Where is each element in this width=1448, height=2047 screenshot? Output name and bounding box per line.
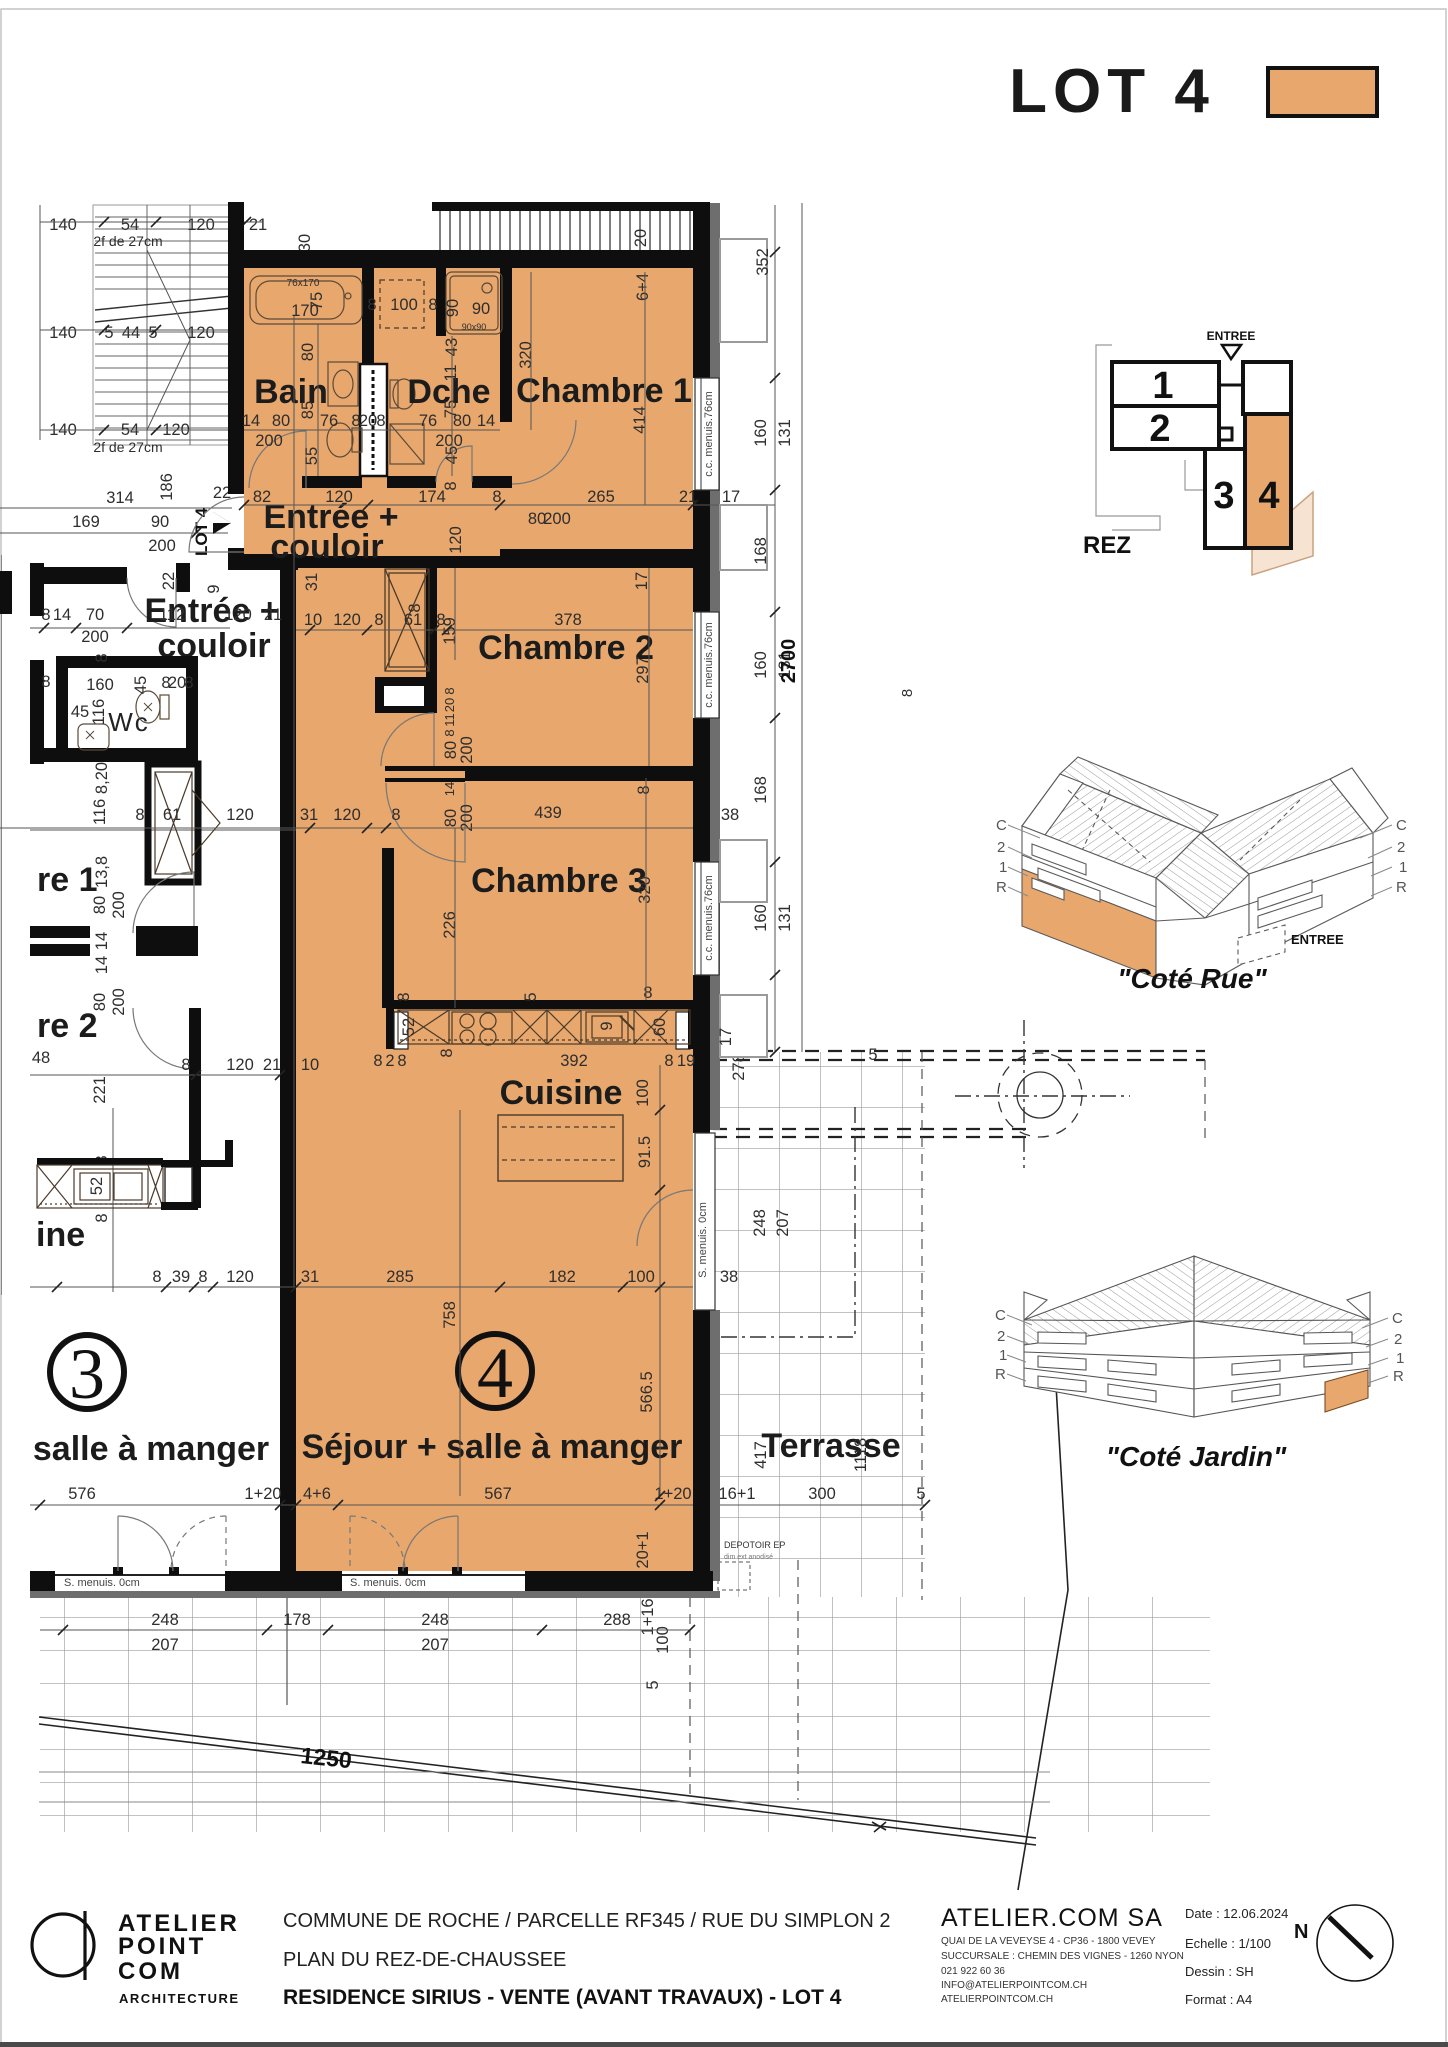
svg-text:2f de 27cm: 2f de 27cm [93,439,162,455]
svg-text:91.5: 91.5 [636,1136,654,1168]
svg-text:378: 378 [554,611,582,629]
svg-text:200: 200 [435,432,463,450]
svg-text:178: 178 [283,1611,311,1629]
svg-text:8: 8 [397,1052,406,1070]
svg-text:LOT 4: LOT 4 [1009,57,1215,126]
svg-text:13,8: 13,8 [93,856,111,888]
svg-text:120: 120 [333,806,361,824]
svg-text:1118: 1118 [852,1438,870,1472]
svg-text:226: 226 [441,911,459,939]
svg-text:17: 17 [633,572,651,590]
svg-text:100: 100 [627,1268,655,1286]
svg-text:52: 52 [88,1177,106,1195]
svg-text:200: 200 [81,628,109,646]
svg-text:ATELIER.COM SA: ATELIER.COM SA [941,1904,1163,1932]
svg-text:8: 8 [93,1213,111,1222]
svg-text:116: 116 [90,699,108,725]
svg-text:14: 14 [53,606,71,624]
svg-text:80: 80 [299,343,317,361]
svg-text:c.c. menuis.76cm: c.c. menuis.76cm [703,875,715,961]
svg-text:90: 90 [472,300,490,318]
svg-text:414: 414 [631,406,649,434]
svg-text:RESIDENCE SIRIUS - VENTE (AVAN: RESIDENCE SIRIUS - VENTE (AVANT TRAVAUX)… [283,1986,842,2009]
svg-text:8: 8 [198,1268,207,1286]
svg-text:200: 200 [110,988,128,1016]
svg-text:8: 8 [395,992,413,1001]
svg-text:Format : A4: Format : A4 [1185,1992,1252,2007]
svg-text:ENTREE: ENTREE [1207,329,1256,343]
svg-text:160: 160 [752,651,770,679]
svg-text:1: 1 [1152,365,1173,407]
svg-text:S. menuis. 0cm: S. menuis. 0cm [697,1202,709,1278]
svg-text:160: 160 [86,676,114,694]
svg-text:200: 200 [458,736,476,764]
svg-text:31: 31 [300,806,318,824]
svg-text:21: 21 [263,1056,281,1074]
svg-text:c.c. menuis.76cm: c.c. menuis.76cm [703,391,715,477]
svg-text:30: 30 [296,234,314,252]
svg-text:C: C [996,817,1007,834]
svg-text:70: 70 [86,606,104,624]
svg-text:2: 2 [1394,1331,1402,1348]
svg-text:2: 2 [1397,839,1405,856]
svg-text:8: 8 [438,1048,456,1057]
svg-text:200: 200 [148,537,176,555]
svg-text:140: 140 [49,216,77,234]
svg-text:2: 2 [997,1328,1005,1345]
svg-text:44: 44 [122,324,140,342]
svg-text:salle à manger: salle à manger [33,1430,269,1468]
svg-text:5: 5 [104,324,113,342]
svg-text:1: 1 [999,859,1007,876]
svg-text:160: 160 [752,904,770,932]
svg-text:168: 168 [752,776,770,804]
svg-text:QUAI DE LA VEVEYSE 4 - CP36 -: QUAI DE LA VEVEYSE 4 - CP36 - 1800 VEVEY [941,1936,1156,1947]
svg-text:417: 417 [752,1441,770,1469]
svg-text:567: 567 [484,1485,512,1503]
svg-text:320: 320 [636,876,654,904]
svg-text:Date : 12.06.2024: Date : 12.06.2024 [1185,1906,1288,1921]
svg-text:COM: COM [118,1958,183,1985]
svg-text:85: 85 [299,401,317,419]
svg-text:ARCHITECTURE: ARCHITECTURE [119,1991,240,2006]
svg-text:2: 2 [997,839,1005,856]
svg-text:6+4: 6+4 [634,273,652,301]
svg-text:131: 131 [776,904,794,932]
svg-text:248: 248 [751,1209,769,1237]
svg-text:21: 21 [249,216,267,234]
svg-text:39: 39 [172,1268,190,1286]
svg-text:60: 60 [651,1018,669,1036]
svg-text:11: 11 [442,713,457,727]
svg-text:14: 14 [93,932,111,950]
svg-text:200: 200 [255,432,283,450]
svg-text:PLAN DU REZ-DE-CHAUSSEE: PLAN DU REZ-DE-CHAUSSEE [283,1949,566,1971]
svg-text:120: 120 [447,526,465,554]
svg-text:9: 9 [205,584,223,593]
svg-text:SUCCURSALE : CHEMIN DES VIGNES: SUCCURSALE : CHEMIN DES VIGNES - 1260 NY… [941,1951,1184,1962]
svg-text:100: 100 [390,296,418,314]
svg-text:576: 576 [68,1485,96,1503]
svg-text:S. menuis. 0cm: S. menuis. 0cm [64,1577,140,1589]
svg-text:314: 314 [106,489,134,507]
svg-text:80: 80 [453,412,471,430]
svg-text:1: 1 [1399,859,1407,876]
svg-text:14: 14 [477,412,495,430]
svg-text:14: 14 [93,956,111,974]
svg-text:Chambre 1: Chambre 1 [516,372,692,410]
svg-text:168: 168 [752,537,770,565]
svg-text:"Coté Jardin": "Coté Jardin" [1106,1441,1287,1472]
svg-text:17: 17 [722,488,740,506]
svg-text:320: 320 [517,341,535,369]
svg-text:112: 112 [159,606,185,624]
svg-text:4: 4 [477,1333,513,1413]
svg-text:265: 265 [587,488,615,506]
svg-text:Chambre 3: Chambre 3 [471,862,647,900]
svg-text:LOT 4: LOT 4 [192,507,211,556]
svg-text:38: 38 [720,1268,738,1286]
svg-text:2700: 2700 [778,639,800,684]
svg-text:8,20: 8,20 [93,762,111,794]
svg-text:re 2: re 2 [37,1007,98,1045]
svg-text:45: 45 [132,676,150,694]
svg-text:R: R [1396,879,1407,896]
svg-text:16+1: 16+1 [718,1485,755,1503]
svg-text:76: 76 [320,412,338,430]
svg-text:couloir: couloir [270,528,383,566]
svg-text:200: 200 [543,510,571,528]
svg-text:3: 3 [69,1334,105,1414]
svg-text:c.c. menuis.76cm: c.c. menuis.76cm [703,622,715,708]
svg-text:8: 8 [406,603,424,612]
svg-text:169: 169 [72,513,100,531]
svg-text:dim ext anodisé: dim ext anodisé [724,1554,773,1561]
svg-text:8: 8 [899,689,916,697]
svg-text:5: 5 [868,1046,877,1064]
svg-text:120: 120 [226,1056,254,1074]
svg-text:14: 14 [242,412,260,430]
svg-text:20: 20 [442,698,457,712]
svg-text:100: 100 [634,1079,652,1107]
svg-text:61: 61 [404,611,422,629]
svg-text:8: 8 [664,1052,673,1070]
svg-text:19: 19 [677,1052,695,1070]
svg-text:1: 1 [1396,1350,1404,1367]
svg-text:8: 8 [635,785,653,794]
svg-text:14: 14 [442,782,457,796]
svg-text:5: 5 [522,992,540,1001]
svg-text:120: 120 [325,488,353,506]
svg-text:S. menuis. 0cm: S. menuis. 0cm [350,1577,426,1589]
svg-text:8: 8 [93,653,111,662]
svg-text:1250: 1250 [299,1742,353,1773]
svg-text:31: 31 [303,573,321,591]
svg-text:N: N [1294,1921,1308,1943]
svg-text:131: 131 [776,419,794,447]
svg-text:REZ: REZ [1083,532,1131,559]
svg-text:392: 392 [560,1052,588,1070]
svg-text:Cuisine: Cuisine [500,1074,623,1112]
svg-text:5: 5 [644,1680,662,1689]
svg-text:2f de 27cm: 2f de 27cm [93,233,162,249]
svg-text:182: 182 [548,1268,576,1286]
svg-text:8: 8 [41,606,50,624]
svg-text:207: 207 [774,1209,792,1237]
svg-text:Séjour + salle à manger: Séjour + salle à manger [302,1428,683,1466]
svg-text:8: 8 [373,1052,382,1070]
svg-text:221: 221 [91,1076,109,1104]
svg-text:ine: ine [36,1216,85,1254]
svg-text:ENTREE: ENTREE [1291,932,1344,947]
svg-text:8: 8 [492,488,501,506]
svg-text:8: 8 [442,729,457,736]
svg-text:80: 80 [272,412,290,430]
svg-text:38: 38 [721,806,739,824]
svg-text:8: 8 [135,806,144,824]
svg-text:4+6: 4+6 [303,1485,331,1503]
svg-text:COMMUNE DE ROCHE / PARCELLE RF: COMMUNE DE ROCHE / PARCELLE RF345 / RUE … [283,1910,891,1932]
svg-text:C: C [1396,817,1407,834]
svg-text:9: 9 [598,1021,616,1030]
svg-text:300: 300 [808,1485,836,1503]
svg-text:R: R [996,879,1007,896]
svg-text:20+1: 20+1 [634,1531,652,1568]
svg-text:48: 48 [32,1049,50,1067]
svg-text:8: 8 [184,674,193,692]
svg-text:8: 8 [367,296,376,314]
svg-text:Echelle : 1/100: Echelle : 1/100 [1185,1936,1271,1951]
svg-text:90: 90 [151,513,169,531]
svg-text:C: C [1392,1310,1403,1327]
svg-text:10: 10 [301,1056,319,1074]
svg-text:Terrasse: Terrasse [761,1427,900,1465]
svg-text:Chambre 2: Chambre 2 [478,629,654,667]
svg-text:61: 61 [163,806,181,824]
svg-text:52: 52 [400,1018,418,1036]
svg-text:11: 11 [442,364,460,381]
svg-text:DEPOTOIR EP: DEPOTOIR EP [724,1540,785,1550]
svg-text:758: 758 [441,1301,459,1329]
svg-text:186: 186 [158,473,176,501]
svg-text:120: 120 [187,216,215,234]
svg-text:90x90: 90x90 [462,322,487,332]
svg-text:2: 2 [385,1052,394,1070]
svg-text:5: 5 [916,1485,925,1503]
svg-text:116: 116 [91,799,109,825]
svg-text:140: 140 [49,324,77,342]
svg-text:20: 20 [359,412,377,430]
svg-text:200: 200 [110,891,128,919]
svg-text:288: 288 [603,1611,631,1629]
svg-text:17: 17 [717,1028,735,1046]
svg-text:76: 76 [419,412,437,430]
svg-text:22: 22 [160,572,178,590]
svg-text:54: 54 [121,216,139,234]
svg-text:R: R [1393,1368,1404,1385]
svg-text:1: 1 [999,1347,1007,1364]
svg-text:8: 8 [374,611,383,629]
svg-text:2: 2 [1149,408,1170,450]
svg-text:82: 82 [253,488,271,506]
svg-text:160: 160 [752,419,770,447]
svg-text:120: 120 [226,1268,254,1286]
svg-text:ATELIERPOINTCOM.CH: ATELIERPOINTCOM.CH [941,1994,1053,2005]
svg-text:248: 248 [151,1611,179,1629]
svg-text:31: 31 [301,1268,319,1286]
svg-text:566.5: 566.5 [638,1371,656,1412]
svg-text:76x170: 76x170 [287,278,320,289]
svg-text:R: R [995,1366,1006,1383]
svg-text:C: C [995,1307,1006,1324]
svg-text:90: 90 [444,299,462,317]
svg-text:4: 4 [1258,475,1279,517]
svg-text:248: 248 [421,1611,449,1629]
svg-text:"Coté Rue": "Coté Rue" [1117,963,1267,994]
svg-text:120: 120 [187,324,215,342]
svg-text:174: 174 [418,488,446,506]
svg-text:120: 120 [333,611,361,629]
svg-text:45: 45 [71,703,89,721]
svg-text:21: 21 [264,606,282,624]
svg-text:8: 8 [391,806,400,824]
svg-text:285: 285 [386,1268,414,1286]
svg-text:20: 20 [632,229,650,247]
svg-text:INFO@ATELIERPOINTCOM.CH: INFO@ATELIERPOINTCOM.CH [941,1980,1087,1991]
svg-text:75: 75 [308,292,326,310]
svg-text:8: 8 [181,1056,190,1074]
svg-text:8: 8 [428,296,437,314]
svg-text:re 1: re 1 [37,861,98,899]
svg-text:8: 8 [442,687,457,694]
svg-text:Dessin : SH: Dessin : SH [1185,1964,1254,1979]
svg-text:8: 8 [376,412,385,430]
svg-text:021 922 60 36: 021 922 60 36 [941,1966,1005,1977]
svg-text:80: 80 [91,896,109,914]
svg-text:8: 8 [643,984,652,1002]
svg-text:439: 439 [534,804,562,822]
svg-text:1+20: 1+20 [244,1485,281,1503]
svg-text:8: 8 [152,1268,161,1286]
svg-text:207: 207 [151,1636,179,1654]
svg-text:120: 120 [226,806,254,824]
svg-text:8: 8 [41,673,50,691]
svg-text:POINT: POINT [118,1933,206,1960]
svg-text:3: 3 [1213,475,1234,517]
svg-text:159: 159 [441,617,459,645]
svg-text:352: 352 [754,248,772,276]
svg-text:207: 207 [421,1636,449,1654]
svg-text:120: 120 [224,606,252,624]
